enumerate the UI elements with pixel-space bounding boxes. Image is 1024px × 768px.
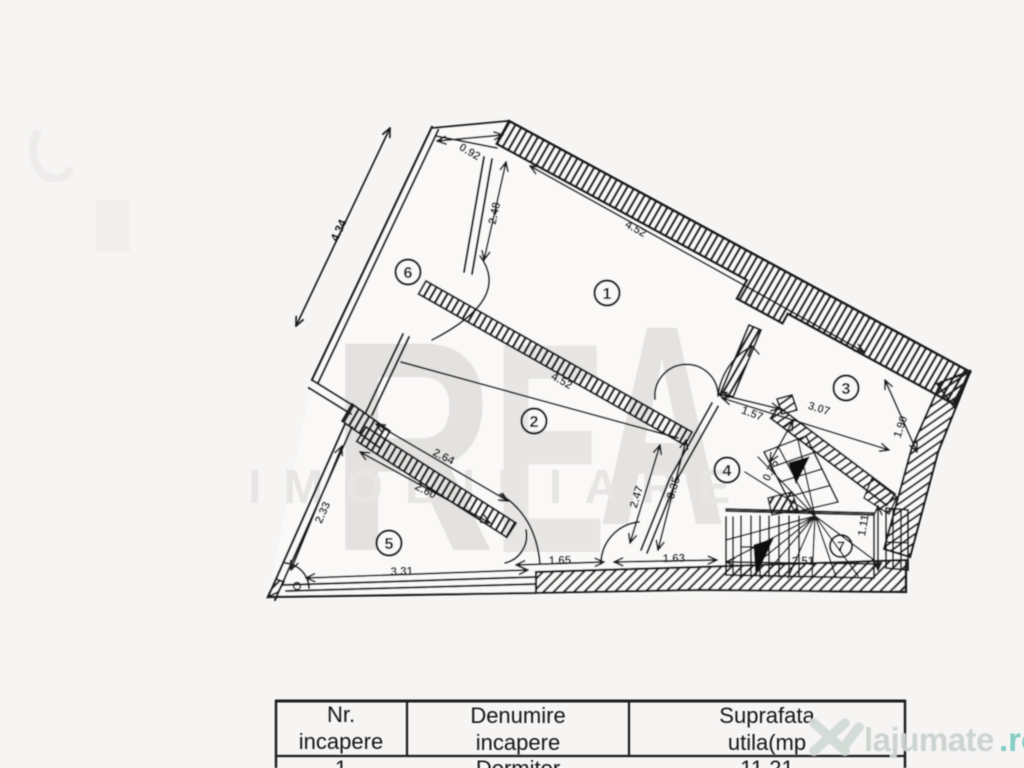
svg-text:1: 1 <box>335 756 347 768</box>
svg-text:.ro: .ro <box>999 721 1024 758</box>
svg-text:Suprafata: Suprafata <box>719 703 815 728</box>
svg-text:3.31: 3.31 <box>390 566 413 579</box>
svg-text:lajumate: lajumate <box>864 721 994 758</box>
svg-text:Denumire: Denumire <box>470 703 565 728</box>
svg-text:Nr.: Nr. <box>327 702 355 727</box>
svg-text:2: 2 <box>530 414 539 431</box>
svg-text:6: 6 <box>404 265 413 282</box>
svg-text:1.63: 1.63 <box>663 553 686 565</box>
svg-text:utila(mp: utila(mp <box>728 730 806 755</box>
svg-text:5: 5 <box>385 536 394 553</box>
svg-text:1.65: 1.65 <box>549 555 572 567</box>
svg-text:incapere: incapere <box>476 730 560 755</box>
svg-text:incapere: incapere <box>299 729 383 754</box>
svg-text:3: 3 <box>842 381 851 398</box>
svg-text:7: 7 <box>837 538 845 554</box>
svg-text:Dormitor: Dormitor <box>476 756 560 768</box>
svg-text:11.21: 11.21 <box>740 756 793 768</box>
svg-text:4: 4 <box>723 463 732 480</box>
svg-text:1: 1 <box>603 286 612 303</box>
